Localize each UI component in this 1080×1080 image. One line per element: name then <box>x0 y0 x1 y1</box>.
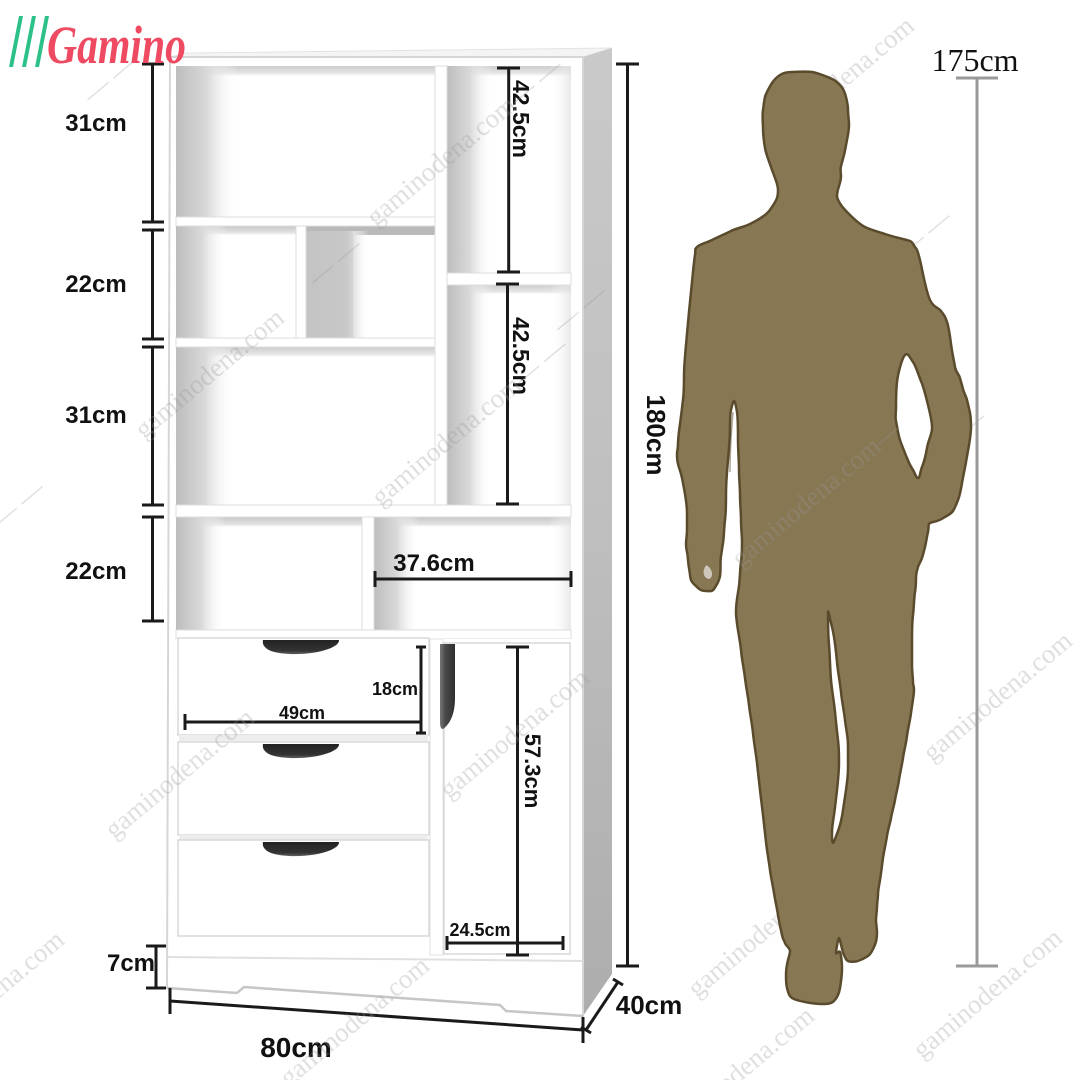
svg-text:Gamino: Gamino <box>47 15 186 75</box>
svg-text:180cm: 180cm <box>641 395 671 476</box>
svg-text:22cm: 22cm <box>65 558 126 585</box>
svg-text:175cm: 175cm <box>931 42 1018 78</box>
svg-text:22cm: 22cm <box>65 271 126 298</box>
svg-text:57.3cm: 57.3cm <box>520 734 545 809</box>
svg-text:49cm: 49cm <box>279 703 325 723</box>
svg-text:40cm: 40cm <box>616 990 683 1020</box>
svg-text:31cm: 31cm <box>65 402 126 429</box>
svg-text:18cm: 18cm <box>372 679 418 699</box>
svg-text:37.6cm: 37.6cm <box>393 550 474 577</box>
svg-text:7cm: 7cm <box>107 950 155 977</box>
svg-text:24.5cm: 24.5cm <box>449 920 510 940</box>
svg-text:31cm: 31cm <box>65 110 126 137</box>
